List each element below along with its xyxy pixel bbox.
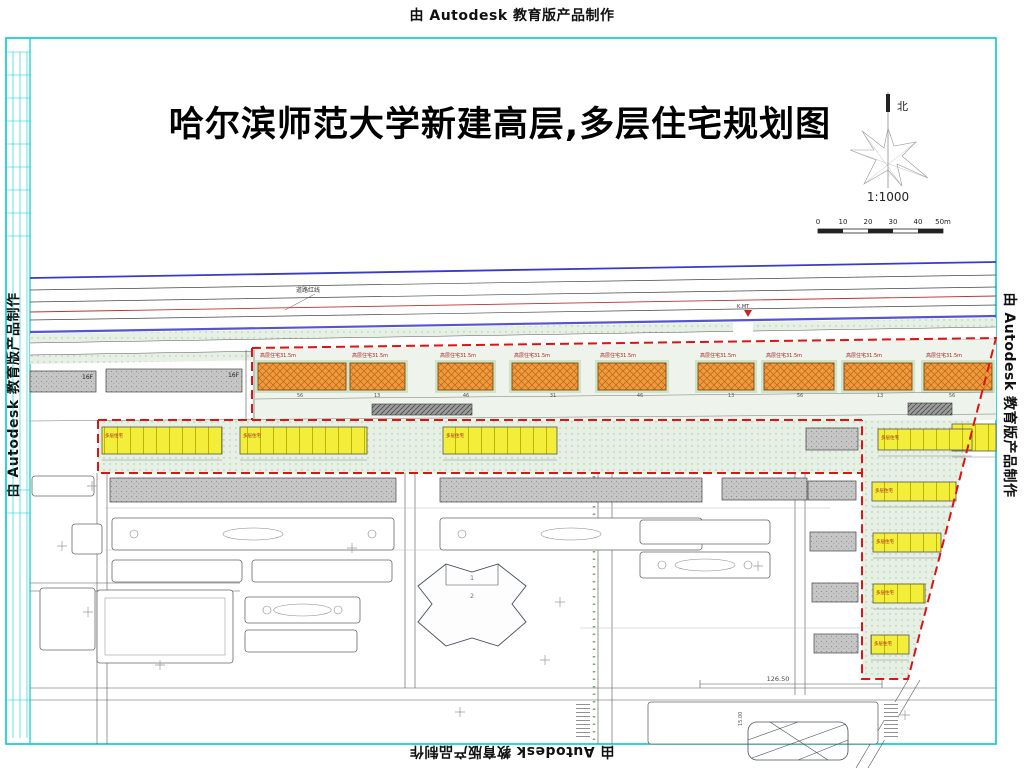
service-strip: [908, 403, 952, 415]
existing-building: [110, 478, 396, 502]
survey-cross: [455, 707, 465, 717]
wind-rose: [850, 128, 928, 186]
survey-cross: [540, 655, 550, 665]
outline-building: [640, 520, 770, 544]
highrise-building: [258, 363, 346, 390]
cross-room-2: 2: [470, 593, 474, 600]
midrise-building: [102, 427, 222, 454]
outline-building: [245, 630, 357, 652]
outline-building: [640, 552, 770, 578]
dim-value: 31: [550, 393, 556, 399]
dim-value: 13: [374, 393, 380, 399]
existing-building: [814, 634, 858, 653]
highrise-label: 高层住宅31.5m: [926, 352, 962, 359]
dim-value: 13: [728, 393, 734, 399]
midrise-label: 多层住宅: [105, 432, 123, 439]
outline-building: [252, 560, 392, 582]
midrise-label: 多层住宅: [875, 487, 893, 494]
scale-tick-label: 10: [839, 218, 848, 226]
existing-building: [810, 532, 856, 551]
scale-tick-label: 40: [914, 218, 923, 226]
highrise-building: [350, 363, 405, 390]
north-label: 北: [897, 100, 908, 113]
site-plan-canvas: 北 1:1000 01020304050m 道路红线: [0, 0, 1024, 768]
dim-value: 13: [877, 393, 883, 399]
midrise-label: 多层住宅: [876, 538, 894, 545]
title-block-grid: [6, 52, 30, 700]
outline-building: [40, 588, 95, 650]
scale-tick-label: 0: [816, 218, 820, 226]
road-red-line-label: 道路红线: [296, 286, 320, 294]
scale-tick-label: 50m: [935, 218, 951, 226]
highrise-building: [438, 363, 493, 390]
highrise-label: 高层住宅31.5m: [514, 352, 550, 359]
existing-building: [106, 369, 242, 392]
entry-marker-icon: [744, 310, 752, 317]
dim-value: 56: [297, 393, 303, 399]
parking-ticks-left: [576, 702, 590, 740]
scale-ratio: 1:1000: [867, 190, 909, 204]
outline-building: [97, 590, 233, 663]
dim-value: 56: [949, 393, 955, 399]
north-arrow: 北: [886, 92, 908, 188]
highrise-label: 高层住宅31.5m: [260, 352, 296, 359]
existing-building: [440, 478, 702, 502]
scale-bar: 01020304050m: [816, 218, 951, 233]
existing-building: [812, 583, 858, 602]
highrise-building: [924, 363, 992, 390]
midrise-label: 多层住宅: [876, 589, 894, 596]
highrise-building: [764, 363, 834, 390]
floor-count-label: 16F: [228, 372, 240, 379]
central-cross-building: 1 2: [418, 564, 526, 646]
highrise-label: 高层住宅31.5m: [600, 352, 636, 359]
midrise-label: 多层住宅: [881, 434, 899, 441]
highrise-label: 高层住宅31.5m: [766, 352, 802, 359]
dimension-126-50: 126.50: [700, 675, 882, 688]
dim-126-50-text: 126.50: [767, 675, 790, 683]
cad-drawing-page: 由 Autodesk 教育版产品制作 由 Autodesk 教育版产品制作 由 …: [0, 0, 1024, 768]
parking-ticks-right: [884, 702, 898, 740]
highrise-building: [512, 363, 578, 390]
outline-building: [245, 597, 360, 623]
dim-value: 46: [637, 393, 643, 399]
highrise-building: [698, 363, 754, 390]
wind-rose-spokes: [850, 128, 928, 186]
highrise-label: 高层住宅31.5m: [700, 352, 736, 359]
outline-building: [112, 560, 242, 582]
floor-count-label: 16F: [82, 374, 94, 381]
scale-tick-label: 30: [889, 218, 898, 226]
k-marker-label: K.MT: [737, 304, 750, 310]
highrise-building: [598, 363, 666, 390]
highrise-building: [844, 363, 912, 390]
scale-tick-label: 20: [864, 218, 873, 226]
dim-15-00-text: 15.00: [738, 712, 744, 726]
midrise-label: 多层住宅: [874, 640, 892, 647]
dim-value: 46: [463, 393, 469, 399]
outline-building: [72, 524, 102, 554]
survey-cross: [57, 541, 67, 551]
highrise-label: 高层住宅31.5m: [440, 352, 476, 359]
midrise-label: 多层住宅: [243, 432, 261, 439]
outline-building: [32, 476, 94, 496]
service-strip: [372, 404, 472, 415]
existing-building: [806, 428, 858, 450]
survey-cross: [555, 597, 565, 607]
midrise-building: [443, 427, 557, 454]
dim-value: 56: [797, 393, 803, 399]
midrise-building: [240, 427, 367, 454]
highrise-label: 高层住宅31.5m: [352, 352, 388, 359]
highrise-label: 高层住宅31.5m: [846, 352, 882, 359]
cross-room-1: 1: [470, 575, 474, 582]
existing-building: [722, 478, 807, 500]
midrise-label: 多层住宅: [446, 432, 464, 439]
existing-building: [808, 481, 856, 500]
